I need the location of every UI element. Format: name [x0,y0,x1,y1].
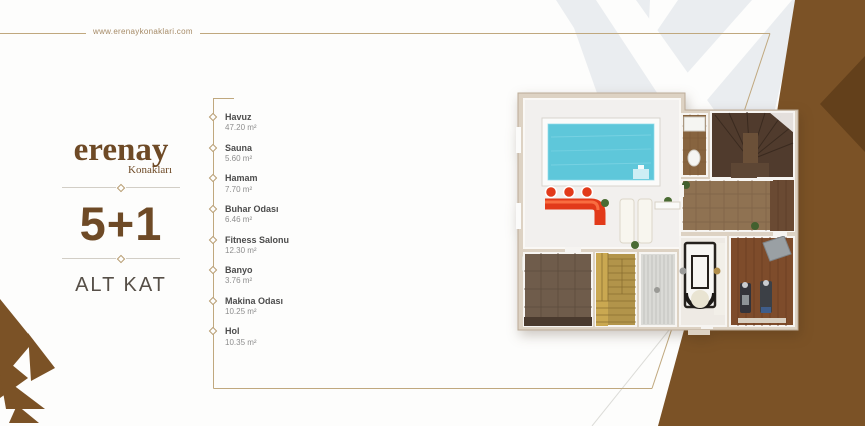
room-makina-odasi [524,253,592,326]
room-name: Havuz [225,112,365,123]
list-item-banyo: Banyo 3.76 m² [225,265,365,287]
list-item-buhar-odasi: Buhar Odası 6.46 m² [225,204,365,226]
room-fitness-salonu [730,236,794,326]
brand-block: erenay Konakları 5+1 ALT KAT [60,136,182,297]
room-stairs [711,112,794,178]
unit-type-label: 5+1 [60,200,182,247]
divider [62,185,180,191]
room-havuz [522,99,680,272]
list-item-fitness-salonu: Fitness Salonu 12.30 m² [225,235,365,257]
list-item-hol: Hol 10.35 m² [225,326,365,348]
room-area: 7.70 m² [225,185,365,195]
list-item-makina-odasi: Makina Odası 10.25 m² [225,296,365,318]
floor-name-label: ALT KAT [60,274,182,297]
room-banyo [680,237,727,326]
room-name: Makina Odası [225,296,365,307]
room-area: 6.46 m² [225,215,365,225]
room-area: 10.25 m² [225,307,365,317]
room-name: Banyo [225,265,365,276]
room-sauna [596,253,636,326]
room-area: 10.35 m² [225,338,365,348]
room-wc [682,114,707,176]
room-hol [682,180,794,231]
list-item-havuz: Havuz 47.20 m² [225,112,365,134]
floorplan-image [505,85,805,335]
diamond-icon [117,183,125,191]
divider [62,256,180,262]
brand-logo: erenay [60,136,182,166]
room-name: Hol [225,326,365,337]
room-name: Sauna [225,143,365,154]
room-name: Buhar Odası [225,204,365,215]
room-buhar-odasi [640,253,676,326]
room-area: 3.76 m² [225,276,365,286]
room-name: Hamam [225,173,365,184]
website-link[interactable]: www.erenaykonaklari.com [86,27,200,36]
room-area: 5.60 m² [225,154,365,164]
room-area: 12.30 m² [225,246,365,256]
diamond-icon [117,254,125,262]
triangle-motif [0,299,55,423]
room-area: 47.20 m² [225,123,365,133]
list-item-hamam: Hamam 7.70 m² [225,173,365,195]
list-item-sauna: Sauna 5.60 m² [225,143,365,165]
room-list: Havuz 47.20 m² Sauna 5.60 m² Hamam 7.70 … [225,112,365,357]
room-name: Fitness Salonu [225,235,365,246]
